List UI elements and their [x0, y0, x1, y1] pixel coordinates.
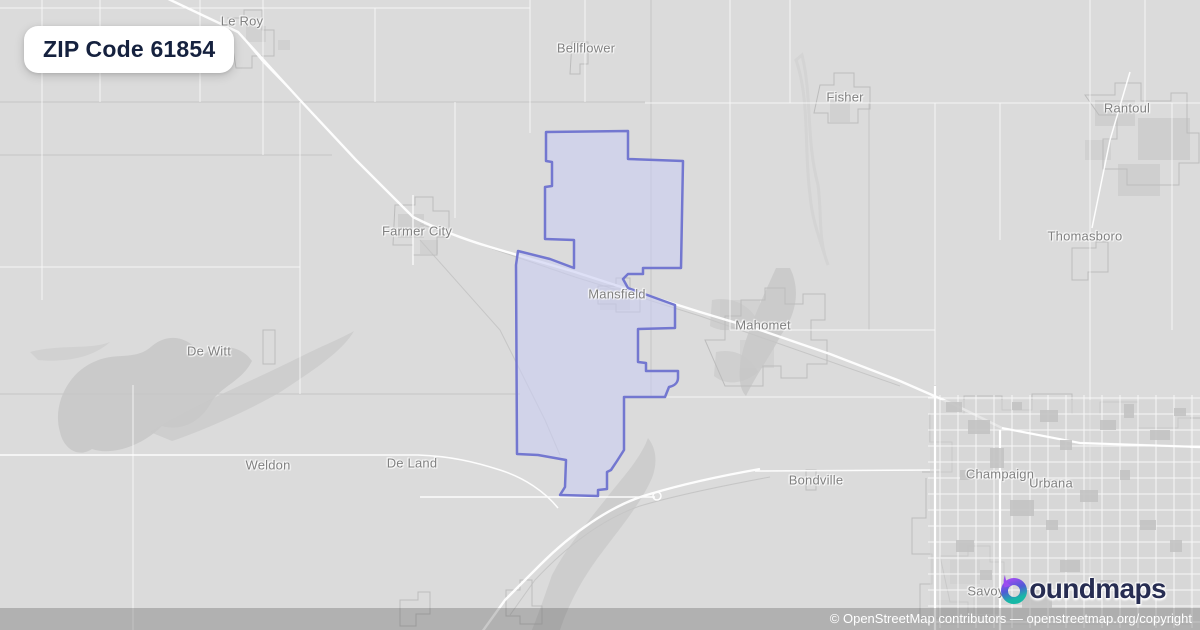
- town-label: Fisher: [826, 90, 863, 105]
- boundmaps-wordmark: oundmaps: [1029, 573, 1166, 605]
- town-label: Bellflower: [557, 41, 615, 56]
- town-label: Mansfield: [588, 287, 645, 302]
- town-label: Thomasboro: [1048, 229, 1123, 244]
- zip-code-title: ZIP Code 61854: [43, 36, 215, 62]
- town-label: Mahomet: [735, 318, 791, 333]
- town-label: Farmer City: [382, 224, 452, 239]
- town-label: Rantoul: [1104, 101, 1150, 116]
- town-label: Bondville: [789, 473, 844, 488]
- zip-code-badge: ZIP Code 61854: [24, 26, 234, 73]
- attribution-link[interactable]: © OpenStreetMap contributors — openstree…: [830, 611, 1192, 626]
- town-label: Champaign: [966, 467, 1034, 482]
- map-canvas[interactable]: Le RoyBellflowerFisherRantoulThomasboroF…: [0, 0, 1200, 630]
- town-label: Le Roy: [221, 14, 263, 29]
- town-label: De Witt: [187, 344, 231, 359]
- boundmaps-icon: [999, 574, 1028, 605]
- basemap: [0, 0, 1200, 630]
- attribution-bar: © OpenStreetMap contributors — openstree…: [0, 608, 1200, 630]
- town-label: De Land: [387, 456, 438, 471]
- town-label: Weldon: [245, 458, 290, 473]
- zip-boundary-polygon: [516, 131, 683, 496]
- town-label: Urbana: [1029, 476, 1073, 491]
- boundmaps-logo[interactable]: oundmaps: [999, 573, 1166, 605]
